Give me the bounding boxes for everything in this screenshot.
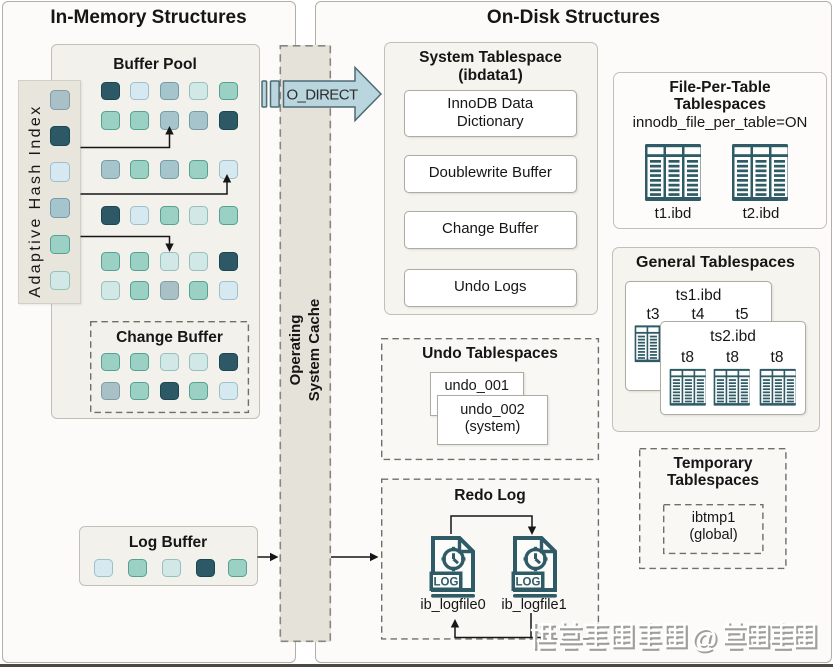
svg-text:LOG: LOG <box>434 577 459 589</box>
svg-text:LOG: LOG <box>515 577 540 589</box>
